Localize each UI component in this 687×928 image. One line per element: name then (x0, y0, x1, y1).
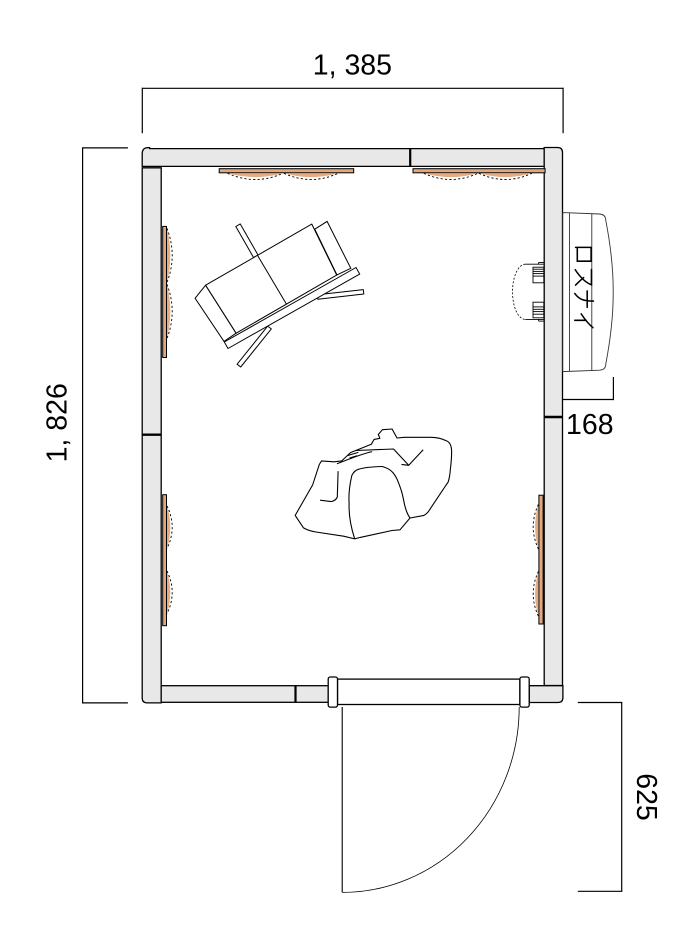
svg-text:625: 625 (630, 773, 662, 821)
svg-text:1, 385: 1, 385 (313, 50, 392, 82)
svg-text:1, 826: 1, 826 (42, 383, 74, 462)
svg-text:168: 168 (566, 409, 614, 441)
